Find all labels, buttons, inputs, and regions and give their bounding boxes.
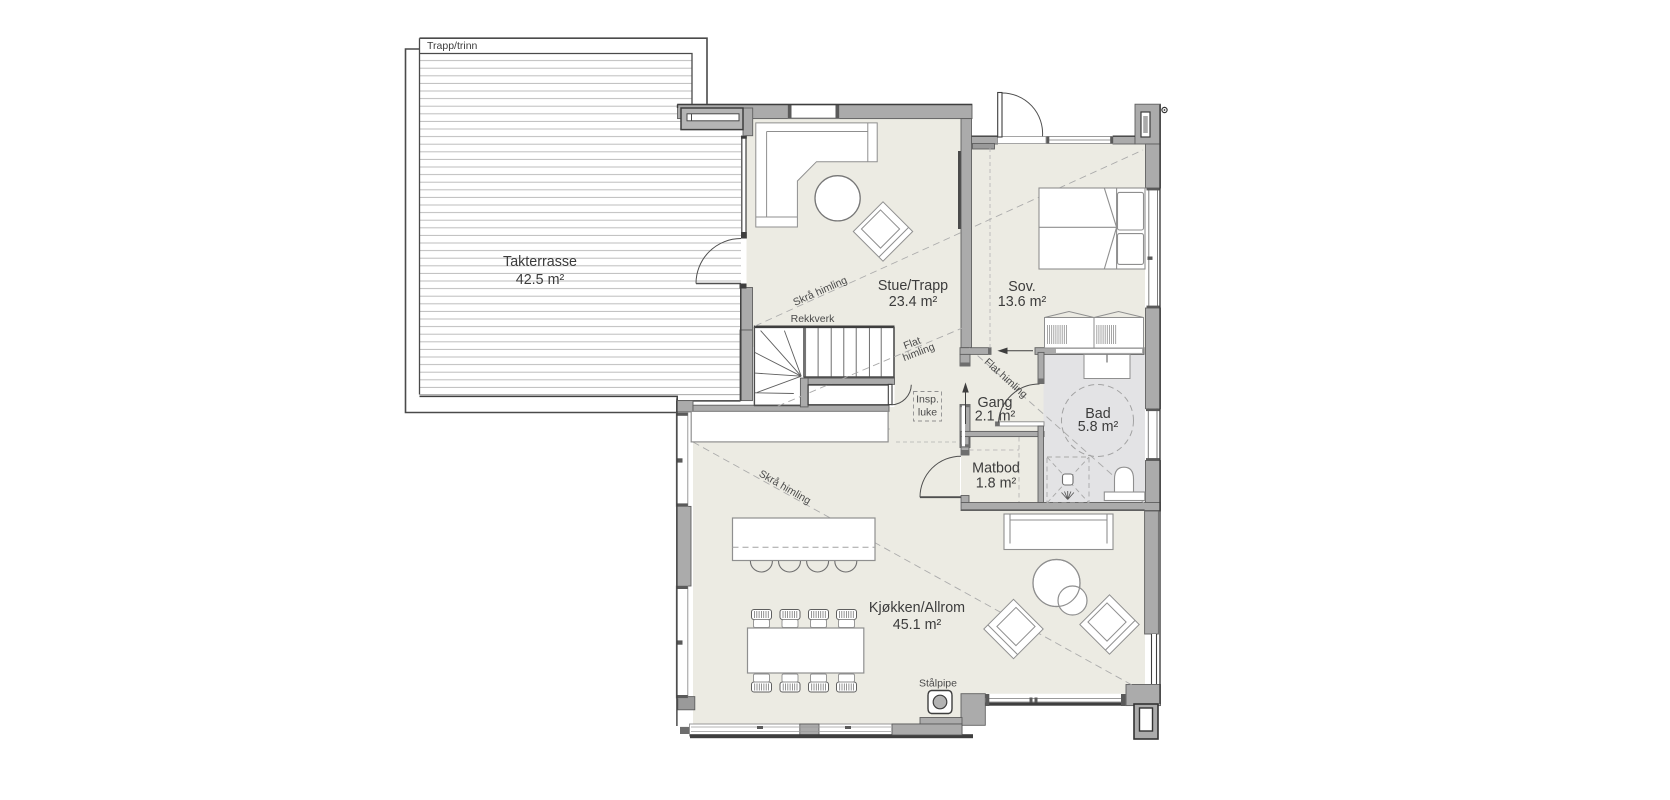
svg-text:42.5 m²: 42.5 m² — [516, 272, 565, 288]
svg-text:45.1 m²: 45.1 m² — [893, 617, 942, 633]
svg-text:1.8 m²: 1.8 m² — [976, 476, 1017, 492]
svg-text:Stue/Trapp: Stue/Trapp — [878, 278, 948, 294]
svg-text:Matbod: Matbod — [972, 461, 1020, 477]
svg-text:Rekkverk: Rekkverk — [791, 313, 836, 325]
svg-text:Stålpipe: Stålpipe — [919, 678, 957, 690]
svg-text:23.4 m²: 23.4 m² — [889, 294, 938, 310]
svg-text:Kjøkken/Allrom: Kjøkken/Allrom — [869, 600, 965, 616]
svg-text:luke: luke — [918, 407, 937, 419]
svg-text:Trapp/trinn: Trapp/trinn — [427, 40, 478, 52]
svg-text:Sov.: Sov. — [1008, 279, 1036, 295]
svg-text:Insp.: Insp. — [916, 394, 939, 406]
svg-text:2.1 m²: 2.1 m² — [975, 409, 1016, 425]
svg-text:Takterrasse: Takterrasse — [503, 254, 577, 270]
svg-text:13.6 m²: 13.6 m² — [998, 294, 1047, 310]
svg-text:5.8 m²: 5.8 m² — [1078, 419, 1119, 435]
